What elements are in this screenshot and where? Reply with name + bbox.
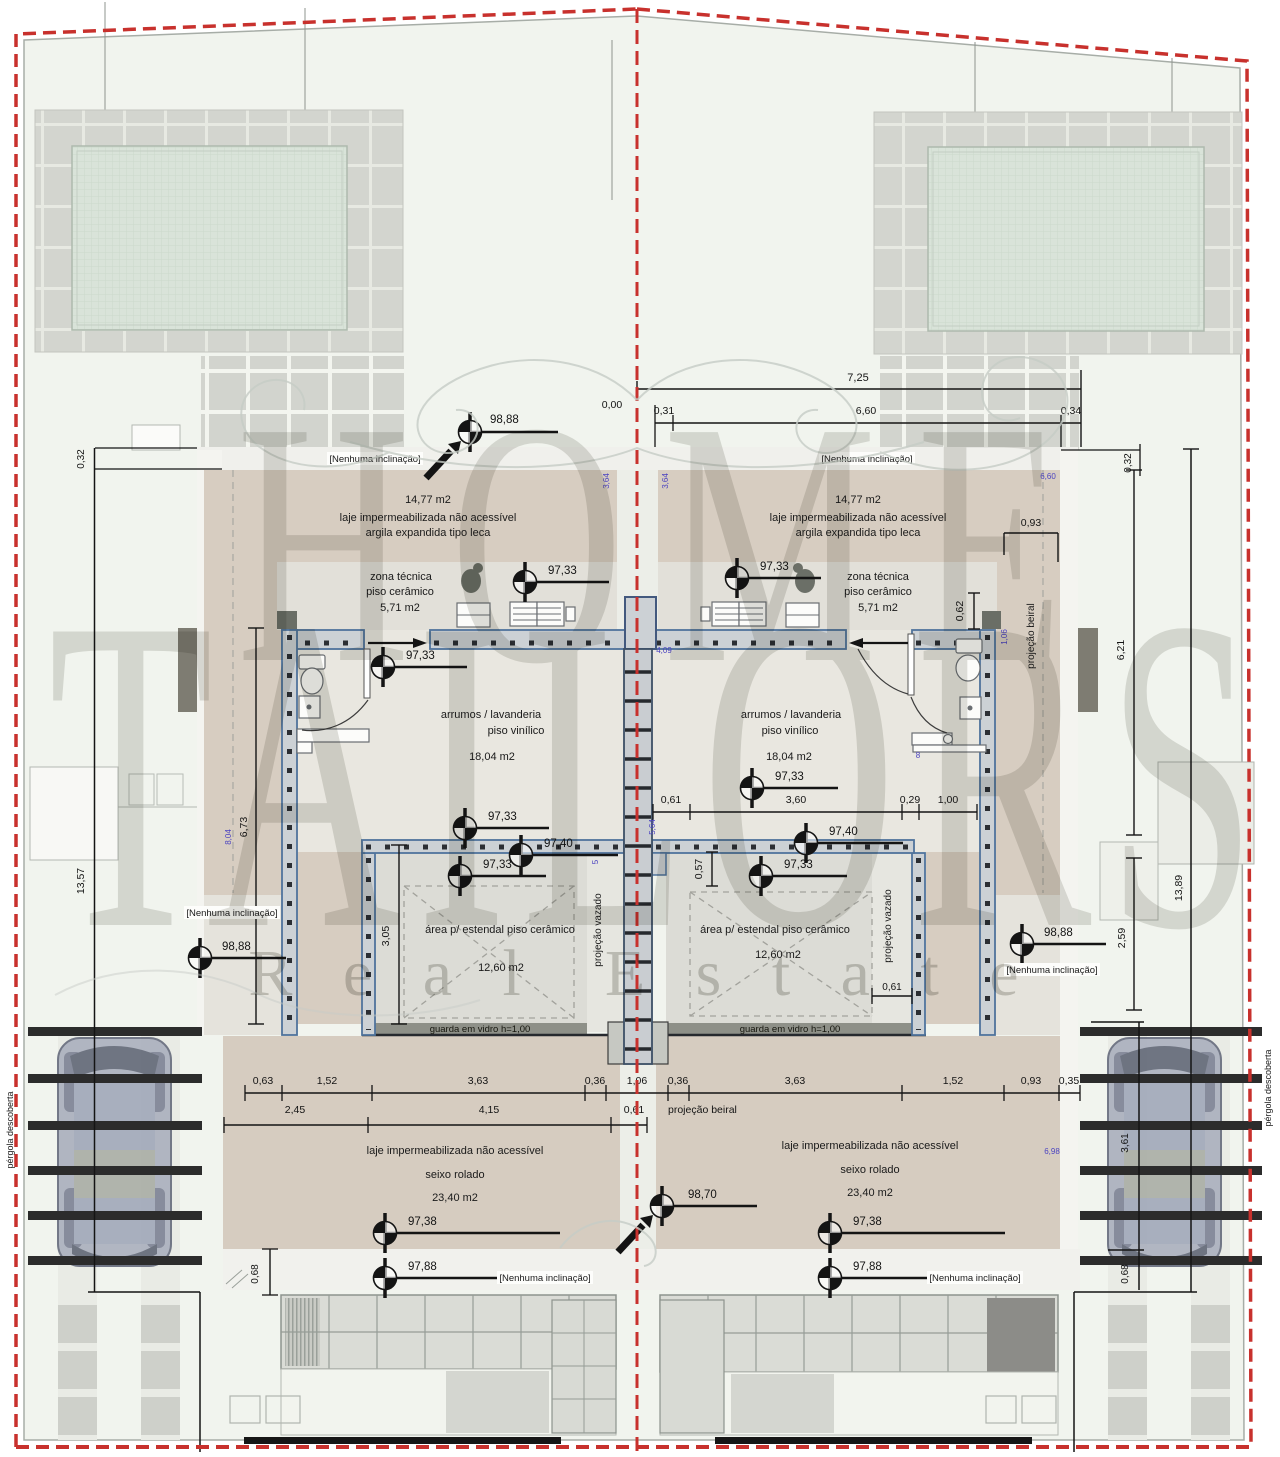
svg-text:0,32: 0,32 bbox=[76, 449, 87, 469]
svg-text:projeção beiral: projeção beiral bbox=[668, 1104, 737, 1116]
svg-text:98,70: 98,70 bbox=[688, 1189, 717, 1201]
svg-text:97,38: 97,38 bbox=[408, 1216, 437, 1228]
svg-text:3,63: 3,63 bbox=[468, 1075, 489, 1087]
svg-text:97,38: 97,38 bbox=[853, 1216, 882, 1228]
svg-text:0,36: 0,36 bbox=[668, 1075, 689, 1087]
svg-text:6,98: 6,98 bbox=[1044, 1147, 1060, 1156]
svg-text:guarda em vidro h=1,00: guarda em vidro h=1,00 bbox=[740, 1024, 841, 1035]
svg-text:3,63: 3,63 bbox=[785, 1075, 806, 1087]
svg-text:0,61: 0,61 bbox=[624, 1104, 645, 1116]
svg-text:23,40 m2: 23,40 m2 bbox=[847, 1187, 893, 1199]
svg-text:seixo rolado: seixo rolado bbox=[425, 1169, 484, 1181]
svg-text:laje impermeabilizada não aces: laje impermeabilizada não acessível bbox=[782, 1140, 959, 1152]
svg-text:97,88: 97,88 bbox=[408, 1261, 437, 1273]
svg-text:4,15: 4,15 bbox=[479, 1104, 500, 1116]
svg-text:pérgola descoberta: pérgola descoberta bbox=[1263, 1049, 1273, 1126]
svg-text:laje impermeabilizada não aces: laje impermeabilizada não acessível bbox=[367, 1145, 544, 1157]
svg-text:pérgola descoberta: pérgola descoberta bbox=[5, 1091, 15, 1168]
svg-text:1,52: 1,52 bbox=[317, 1075, 338, 1087]
svg-text:0,68: 0,68 bbox=[1120, 1264, 1131, 1284]
svg-text:R e a l E s t a t e: R e a l E s t a t e bbox=[248, 937, 1035, 1010]
svg-text:97,88: 97,88 bbox=[853, 1261, 882, 1273]
svg-text:23,40 m2: 23,40 m2 bbox=[432, 1192, 478, 1204]
svg-text:0,93: 0,93 bbox=[1021, 1075, 1042, 1087]
svg-text:seixo rolado: seixo rolado bbox=[840, 1164, 899, 1176]
svg-text:[Nenhuma inclinação]: [Nenhuma inclinação] bbox=[499, 1273, 590, 1284]
svg-text:0,35: 0,35 bbox=[1059, 1075, 1080, 1087]
svg-text:2,45: 2,45 bbox=[285, 1104, 306, 1116]
svg-text:guarda em vidro h=1,00: guarda em vidro h=1,00 bbox=[430, 1024, 531, 1035]
svg-text:3,61: 3,61 bbox=[1120, 1133, 1131, 1153]
svg-text:0,36: 0,36 bbox=[585, 1075, 606, 1087]
svg-text:[Nenhuma inclinação]: [Nenhuma inclinação] bbox=[929, 1273, 1020, 1284]
svg-text:0,63: 0,63 bbox=[253, 1075, 274, 1087]
svg-text:0,68: 0,68 bbox=[250, 1264, 261, 1284]
svg-text:1,52: 1,52 bbox=[943, 1075, 964, 1087]
